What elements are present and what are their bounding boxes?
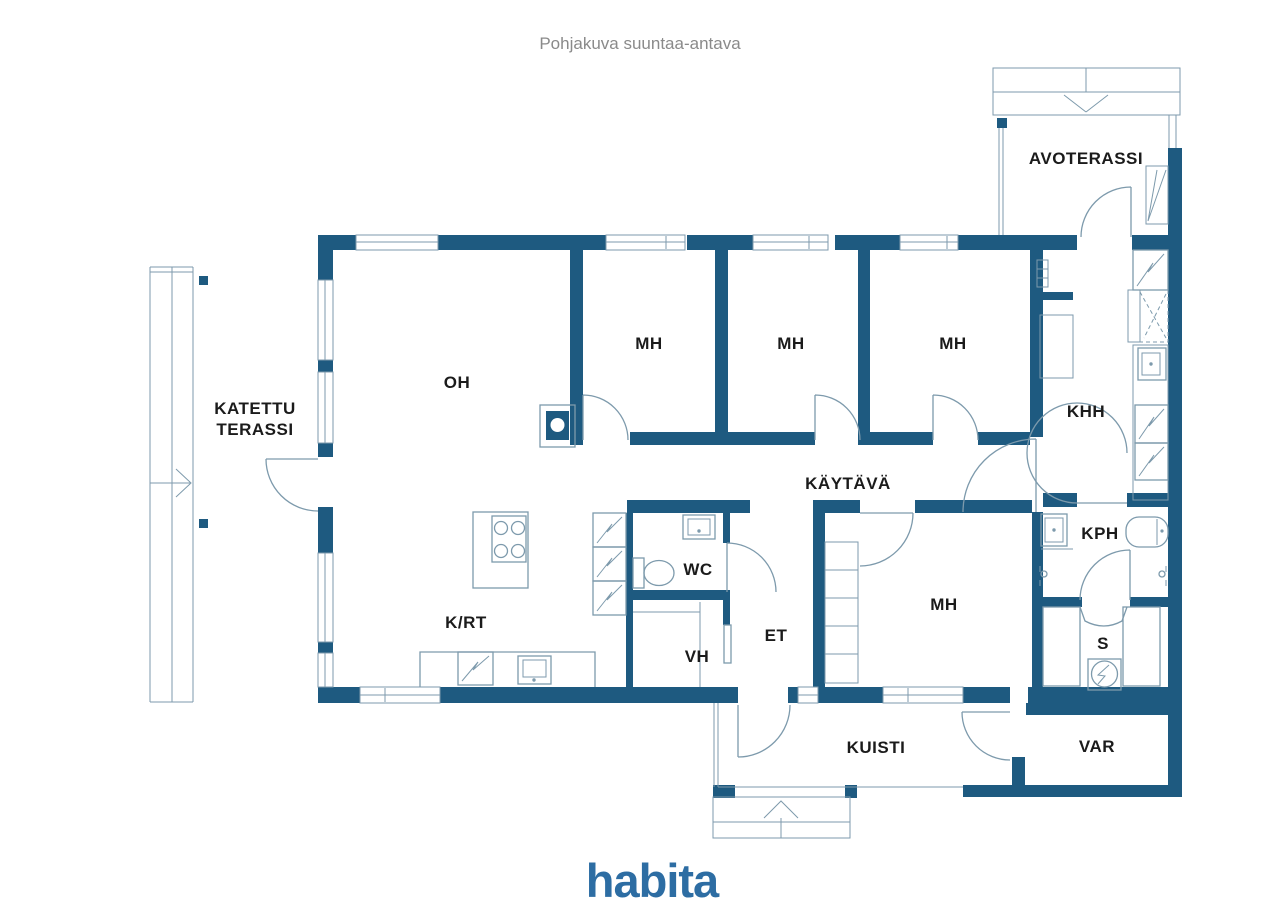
closets bbox=[825, 542, 858, 683]
room-label-wc: WC bbox=[683, 560, 712, 579]
door-arc-kph-sauna bbox=[1080, 550, 1130, 600]
habita-logo: habita bbox=[586, 854, 720, 906]
window bbox=[356, 235, 438, 250]
fixtures bbox=[420, 260, 1168, 690]
door-arc-mh3 bbox=[933, 395, 978, 440]
appliance-column bbox=[593, 513, 626, 615]
doors bbox=[266, 187, 1131, 760]
room-label-mh3: MH bbox=[939, 334, 966, 353]
door-arc-var bbox=[962, 712, 1010, 760]
room-label-mh2: MH bbox=[777, 334, 804, 353]
window bbox=[753, 235, 828, 250]
vh-shelves bbox=[633, 602, 700, 687]
window bbox=[798, 687, 818, 703]
room-label-katettu-terassi-2: TERASSI bbox=[216, 420, 293, 439]
window bbox=[318, 653, 333, 687]
room-label-vh: VH bbox=[685, 647, 710, 666]
window bbox=[318, 553, 333, 642]
terrace-post bbox=[997, 118, 1007, 128]
door-arc-mh2 bbox=[815, 395, 860, 440]
window-opening bbox=[1133, 250, 1168, 290]
room-label-s: S bbox=[1097, 634, 1109, 653]
window-opening bbox=[1146, 166, 1168, 224]
room-label-mh1: MH bbox=[635, 334, 662, 353]
room-label-mh4: MH bbox=[930, 595, 957, 614]
door-arc-wc bbox=[727, 543, 776, 592]
room-label-var: VAR bbox=[1079, 737, 1115, 756]
door-arc-mh1 bbox=[583, 395, 628, 440]
window bbox=[900, 235, 958, 250]
katettu-terassi-structure bbox=[150, 267, 193, 702]
terrace-post bbox=[199, 276, 208, 285]
window bbox=[606, 235, 685, 250]
page-title: Pohjakuva suuntaa-antava bbox=[539, 34, 741, 53]
sauna-heater bbox=[1088, 659, 1121, 690]
door-arc-avoterassi bbox=[1081, 187, 1131, 237]
floorplan-page: Pohjakuva suuntaa-antava AVOTERASSI KATE… bbox=[0, 0, 1280, 906]
window bbox=[883, 687, 963, 703]
window bbox=[360, 687, 440, 703]
window bbox=[318, 280, 333, 360]
room-label-kuisti: KUISTI bbox=[847, 738, 906, 757]
window bbox=[318, 372, 333, 443]
outdoor-structures bbox=[150, 68, 1180, 838]
door-arc-terrace bbox=[266, 459, 318, 511]
kitchen-counter bbox=[420, 652, 595, 687]
walls bbox=[199, 118, 1182, 798]
room-label-et: ET bbox=[765, 626, 788, 645]
wc-sink bbox=[683, 515, 715, 539]
toilet bbox=[633, 558, 674, 588]
room-label-khh: KHH bbox=[1067, 402, 1105, 421]
shower bbox=[1128, 290, 1168, 342]
room-label-kph: KPH bbox=[1081, 524, 1118, 543]
sliding-door-vh bbox=[724, 625, 731, 663]
door-arc-kuisti bbox=[738, 705, 790, 757]
slope-arrow bbox=[150, 469, 191, 497]
room-label-avoterassi: AVOTERASSI bbox=[1029, 149, 1143, 168]
room-label-oh: OH bbox=[444, 373, 471, 392]
steps-arrow bbox=[713, 801, 850, 838]
kitchen-island bbox=[473, 512, 528, 588]
room-label-katettu-terassi-1: KATETTU bbox=[214, 399, 296, 418]
fireplace bbox=[540, 405, 575, 447]
room-label-kaytava: KÄYTÄVÄ bbox=[805, 474, 891, 493]
floorplan-drawing: Pohjakuva suuntaa-antava AVOTERASSI KATE… bbox=[0, 0, 1280, 906]
door-arc-mh4 bbox=[860, 513, 913, 566]
room-label-krt: K/RT bbox=[445, 613, 487, 632]
kuisti-structure bbox=[713, 703, 963, 838]
terrace-post bbox=[199, 519, 208, 528]
